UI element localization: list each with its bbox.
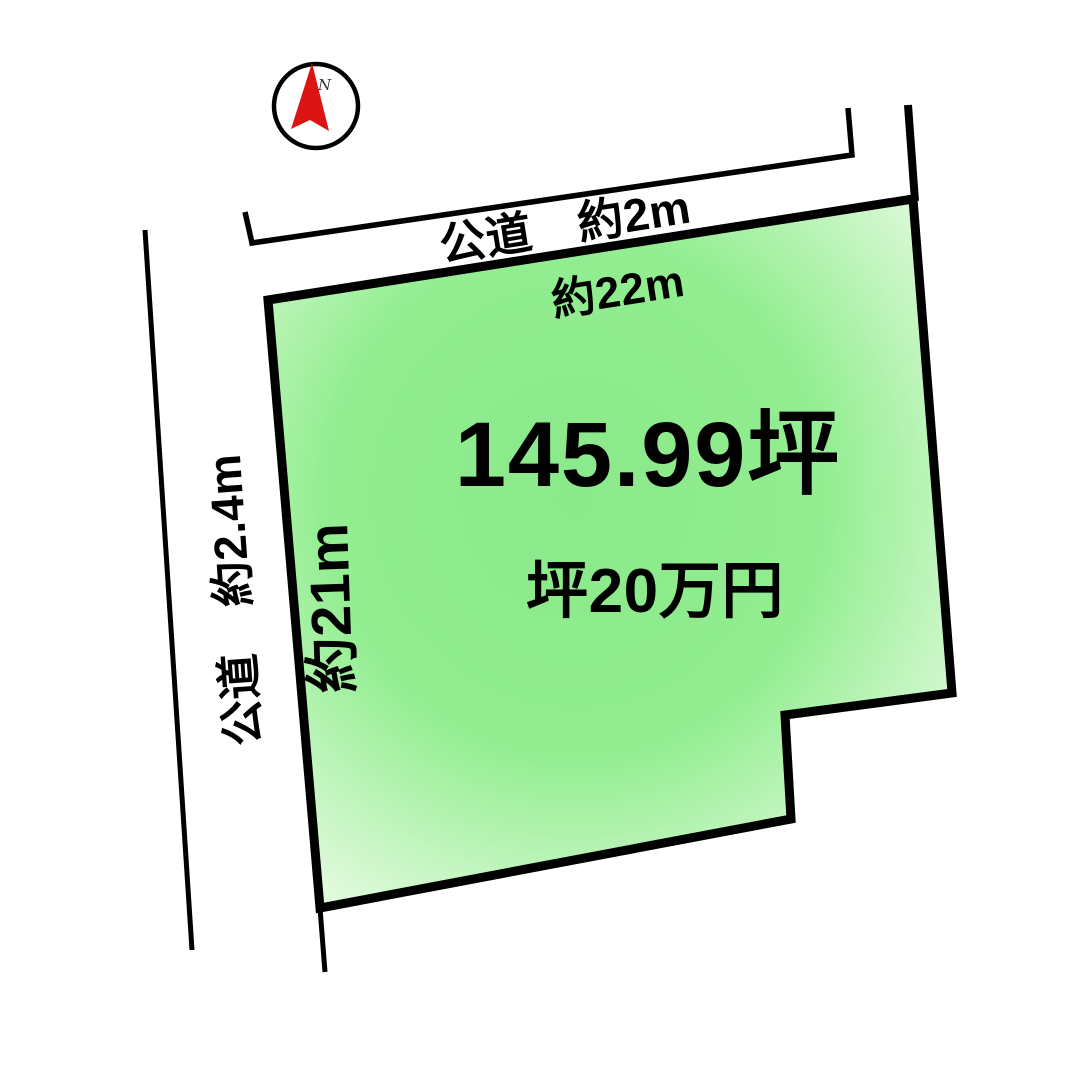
plot-drawing: N [0, 0, 1080, 1080]
right-boundary-extension-line [908, 105, 915, 201]
left-boundary-extension-line [320, 908, 325, 972]
compass-north-icon: N [274, 63, 358, 148]
parcel-area-label: 145.99坪 [455, 409, 841, 501]
compass-n-label: N [317, 76, 332, 94]
compass-needle [291, 63, 329, 131]
parcel-price-label: 坪20万円 [526, 561, 784, 623]
left-edge-dimension-label: 約21m [300, 522, 362, 694]
left-road-edge-line [145, 230, 192, 950]
land-plot-diagram: N 公道 約2m 約22m 公道 約2.4m 約21m 145.99坪 坪20万… [0, 0, 1080, 1080]
